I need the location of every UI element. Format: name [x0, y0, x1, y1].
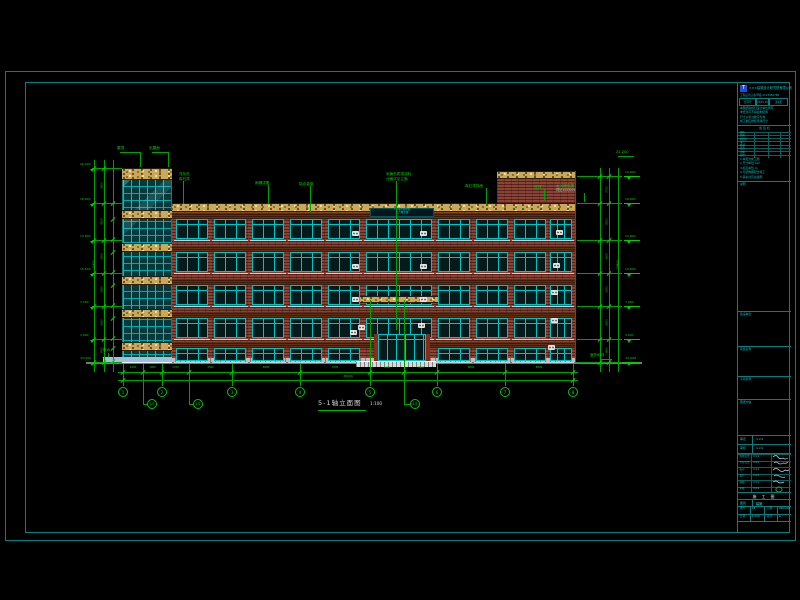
window	[514, 348, 546, 361]
window	[550, 285, 572, 305]
right-dim-value: 3900	[607, 340, 610, 360]
bottom-dim-value: 3300	[411, 367, 431, 370]
overall-dim-value: 45000	[336, 375, 360, 378]
axis-bubble: 1/2	[147, 399, 157, 409]
right-level-flag-line	[624, 339, 640, 340]
signature-role: 校对	[740, 469, 745, 472]
sheet-cell-value: 1:100	[752, 516, 759, 519]
right-level-marker	[627, 177, 631, 180]
window	[290, 252, 322, 272]
window-sill	[364, 273, 434, 274]
stair-tower-curtain-wall	[122, 168, 172, 362]
window-sill	[288, 240, 324, 241]
drawing-scale: 1:100	[370, 402, 382, 407]
window-sill	[436, 306, 472, 307]
window-sill	[548, 306, 574, 307]
bottom-dim-value: 6800	[529, 367, 549, 370]
stair-tower-spandrel-band	[122, 210, 172, 219]
window	[550, 252, 572, 272]
window	[328, 318, 360, 338]
window	[176, 285, 208, 305]
bottom-dim-value: 6800	[461, 367, 481, 370]
window-sill	[364, 240, 434, 241]
approve-value: ×××	[756, 447, 764, 450]
left-dim-value: 3300	[102, 312, 105, 332]
window-sill	[288, 306, 324, 307]
offset-axis-leader	[189, 386, 190, 404]
right-dim-value: 3300	[607, 279, 610, 299]
window	[176, 252, 208, 272]
stair-tower-top-band	[122, 168, 172, 180]
bottom-extension-line	[300, 364, 301, 386]
right-level-value: ±0.000	[625, 357, 636, 360]
facade-annotation: 米黄色质感涂料	[386, 172, 411, 176]
left-dim-chain	[113, 160, 114, 372]
window-sill	[512, 339, 548, 340]
left-level-value: 20.400	[80, 163, 91, 166]
window	[438, 219, 470, 239]
window-sill	[436, 339, 472, 340]
window-sill	[474, 339, 510, 340]
window	[214, 252, 246, 272]
signature-name: ×××	[753, 482, 759, 485]
drawing-title-underline	[318, 410, 366, 411]
right-level-flag-line	[624, 273, 640, 274]
window	[290, 285, 322, 305]
approve-divider	[752, 435, 753, 444]
axis-bubble: 1	[118, 387, 128, 397]
window-sill	[548, 362, 574, 363]
signature-role: 制图	[740, 482, 745, 485]
right-level-value: 19.600	[625, 171, 636, 174]
annotation-leader	[310, 186, 311, 212]
building-sign-band: ××市实验学校综合教学楼	[370, 208, 434, 217]
right-dim-value: 3300	[607, 312, 610, 332]
right-level-value: 18.000	[625, 198, 636, 201]
bottom-dim-value: 4300	[201, 367, 221, 370]
annotation-leader	[396, 181, 397, 330]
offset-axis-leader	[143, 386, 144, 404]
axis-bubble: 2	[157, 387, 167, 397]
window	[328, 252, 360, 272]
window	[438, 285, 470, 305]
section-label: 说明	[740, 183, 746, 186]
window	[476, 252, 508, 272]
annotation-leader	[140, 152, 141, 167]
window	[252, 219, 284, 239]
section-label: 图纸内容	[740, 401, 751, 404]
window	[214, 348, 246, 361]
window-sill	[512, 273, 548, 274]
approve-divider	[752, 444, 753, 453]
bottom-extension-line	[370, 300, 371, 386]
axis-bubble: 4	[295, 387, 305, 397]
window-sill	[548, 273, 574, 274]
window	[290, 348, 322, 361]
section-label: 子项名称	[740, 378, 751, 381]
facade-annotation: 室外地坪	[590, 353, 604, 357]
window-sill	[548, 240, 574, 241]
facade-annotation: 压顶	[534, 185, 541, 189]
signature-role: 专业负责	[740, 462, 750, 465]
facade-annotation: 真石漆饰面	[465, 184, 483, 188]
entrance-column	[426, 334, 430, 361]
sheet-cell-label: 日期	[767, 508, 772, 511]
window	[176, 219, 208, 239]
right-level-value: 13.800	[625, 235, 636, 238]
left-level-value: 10.500	[80, 268, 91, 271]
window-sill	[326, 240, 362, 241]
approve-label: 审定	[740, 438, 746, 441]
signature-name: ×××	[753, 488, 759, 491]
window	[366, 252, 432, 272]
window-sill	[474, 306, 510, 307]
window-sill	[174, 362, 210, 363]
window-sill	[174, 273, 210, 274]
annotation-leader	[152, 152, 168, 153]
window-sill	[212, 306, 248, 307]
signature-name: ×××	[753, 456, 759, 459]
ac-unit	[420, 297, 427, 302]
window-sill	[326, 339, 362, 340]
window-sill	[474, 362, 510, 363]
axis-bubble: 6	[432, 387, 442, 397]
project-row-label: 图别	[740, 502, 746, 506]
window-sill	[250, 273, 286, 274]
entrance-transom	[378, 339, 426, 340]
window	[214, 285, 246, 305]
window	[252, 348, 284, 361]
right-level-flag-line	[624, 176, 640, 177]
annotation-leader	[584, 193, 585, 202]
left-dim-value: 3300	[102, 279, 105, 299]
right-overall-dim: 20400	[616, 254, 619, 276]
window-sill	[326, 306, 362, 307]
window	[514, 285, 546, 305]
signature-col-line	[751, 454, 752, 493]
window-sill	[474, 273, 510, 274]
left-level-value: ±0.000	[80, 357, 91, 360]
right-level-flag-line	[624, 306, 640, 307]
window	[476, 285, 508, 305]
left-extension-line	[92, 203, 122, 204]
bottom-extension-line	[404, 300, 405, 386]
signature-name: ×××	[753, 475, 759, 478]
approve-row-line	[738, 444, 791, 445]
offset-axis-leader	[404, 386, 405, 404]
bottom-extension-line	[437, 364, 438, 386]
annotation-leader	[120, 152, 140, 153]
ac-unit	[350, 330, 357, 335]
left-dim-value: 3300	[102, 246, 105, 266]
annotation-leader	[168, 152, 169, 167]
window-sill	[436, 362, 472, 363]
signature-role: 复核	[740, 488, 745, 491]
annotation-leader	[618, 156, 634, 157]
ac-unit	[420, 231, 427, 236]
window-sill	[512, 240, 548, 241]
window-sill	[436, 240, 472, 241]
bottom-extension-line	[505, 364, 506, 386]
approve-row-line	[738, 435, 791, 436]
sheet-cell-divider	[750, 506, 751, 514]
ac-unit	[553, 263, 560, 268]
axis-bubble: 8	[568, 387, 578, 397]
window-sill	[548, 339, 574, 340]
sign-text-line: 综合教学楼	[371, 212, 433, 215]
axis-bubble: 3	[227, 387, 237, 397]
sheet-cell-label: 图号	[740, 508, 745, 511]
sheet-cell-label: 版次	[767, 516, 772, 519]
window-sill	[288, 339, 324, 340]
window	[176, 348, 208, 361]
window	[438, 318, 470, 338]
right-dim-value: 4200	[607, 211, 610, 231]
window	[176, 318, 208, 338]
window	[550, 219, 572, 239]
right-level-flag-line	[624, 203, 640, 204]
annotation-leader	[183, 181, 184, 204]
window-sill	[288, 362, 324, 363]
right-level-marker	[627, 363, 631, 366]
window-sill	[212, 362, 248, 363]
window-sill	[474, 240, 510, 241]
sheet-cell-label: 比例	[740, 516, 745, 519]
ac-unit	[556, 230, 563, 235]
window-sill	[250, 240, 286, 241]
signature-name: ×××	[753, 462, 759, 465]
left-overall-dim: 20400	[92, 254, 95, 276]
ac-unit	[551, 290, 558, 295]
bottom-dim-value: 2700	[166, 367, 186, 370]
axis-bubble: 7	[500, 387, 510, 397]
ac-unit	[352, 231, 359, 236]
left-level-value: 7.200	[80, 301, 89, 304]
left-level-value: 3.900	[80, 334, 89, 337]
sheet-cell-value: 2023.06	[779, 508, 790, 511]
window-sill	[512, 362, 548, 363]
window-sill	[174, 240, 210, 241]
signature-scribbles	[771, 453, 791, 492]
right-level-marker	[627, 241, 631, 244]
drawing-title: 5-1轴立面图	[318, 400, 362, 407]
window-sill	[250, 339, 286, 340]
facade-annotation: 屋顶	[117, 146, 124, 150]
window	[252, 285, 284, 305]
left-level-value: 13.800	[80, 235, 91, 238]
bottom-extension-line	[189, 364, 190, 386]
annotation-leader	[268, 185, 269, 204]
right-level-value: 3.900	[625, 334, 634, 337]
window-sill	[364, 306, 434, 307]
left-extension-line	[92, 273, 122, 274]
left-dim-value: 4200	[102, 211, 105, 231]
window	[290, 219, 322, 239]
axis-bubble: 5	[365, 387, 375, 397]
bottom-extension-line	[573, 364, 574, 386]
axis-bubble: 4/5	[410, 399, 420, 409]
facade-annotation: 真石漆	[179, 177, 190, 181]
stair-tower-spandrel-band	[122, 243, 172, 252]
window-sill	[326, 273, 362, 274]
facade-annotation-ref: 详见12ZJ001	[556, 189, 576, 193]
window-sill	[212, 240, 248, 241]
window	[252, 252, 284, 272]
window	[328, 348, 360, 361]
bottom-dim-value: 1900	[143, 367, 163, 370]
facade-annotation: 铝合金窗	[299, 182, 313, 186]
window	[514, 219, 546, 239]
window-sill	[512, 306, 548, 307]
annotation-leader	[108, 353, 109, 357]
window	[438, 252, 470, 272]
window	[476, 318, 508, 338]
left-extension-line	[92, 339, 122, 340]
bottom-extension-line	[232, 364, 233, 386]
facade-annotation: 出屋面	[149, 146, 160, 150]
ac-unit	[358, 325, 365, 330]
bottom-dim-value: 3400	[377, 367, 397, 370]
facade-annotation: 22.200	[616, 150, 629, 154]
title-block-bottom-border	[738, 521, 791, 522]
ac-unit	[352, 264, 359, 269]
elevation-drawing: ××市实验学校综合教学楼20.40019.60018.00018.00013.8…	[0, 0, 800, 600]
project-row: 图别 建施	[738, 499, 791, 506]
bottom-dim-value: 7000	[325, 367, 345, 370]
window	[214, 219, 246, 239]
stair-tower-spandrel-band	[122, 309, 172, 318]
facade-right-edge	[575, 171, 576, 362]
right-level-flag-line	[624, 240, 640, 241]
left-extension-line	[92, 168, 122, 169]
annotation-leader	[544, 189, 545, 200]
left-extension-line	[92, 306, 122, 307]
bottom-dim-value: 2000	[123, 367, 143, 370]
sheet-cell-divider	[777, 506, 778, 514]
window-sill	[288, 273, 324, 274]
right-level-marker	[627, 307, 631, 310]
window	[290, 318, 322, 338]
window	[214, 318, 246, 338]
left-level-value: 18.000	[80, 198, 91, 201]
right-level-marker	[627, 340, 631, 343]
window-sill	[174, 306, 210, 307]
bottom-dim-line-2	[118, 380, 578, 381]
facade-annotation: 浅灰色	[179, 172, 190, 176]
window	[514, 252, 546, 272]
left-extension-line	[92, 240, 122, 241]
right-dim-value: 2700	[607, 179, 610, 199]
right-dim-value: 3300	[607, 246, 610, 266]
window	[476, 348, 508, 361]
window-sill	[212, 273, 248, 274]
signature-role: 设计	[740, 475, 745, 478]
ac-unit	[548, 345, 555, 350]
entrance-column	[374, 334, 378, 361]
section-label: 项目名称	[740, 348, 751, 351]
window-sill	[174, 339, 210, 340]
right-level-flag-line	[624, 362, 640, 363]
ac-unit	[551, 318, 558, 323]
right-level-marker	[627, 274, 631, 277]
window	[328, 219, 360, 239]
window-sill	[250, 306, 286, 307]
window	[514, 318, 546, 338]
bottom-dim-value: 6800	[256, 367, 276, 370]
signature-role: 项目负责	[740, 456, 750, 459]
right-level-marker	[627, 204, 631, 207]
ac-unit	[418, 323, 425, 328]
annotation-leader	[600, 359, 612, 360]
cad-canvas: ××市实验学校综合教学楼20.40019.60018.00018.00013.8…	[0, 0, 800, 600]
annotation-leader	[486, 188, 487, 204]
sheet-cell-value: 15	[752, 508, 755, 511]
window-sill	[436, 273, 472, 274]
sheet-cell-value: A	[779, 516, 781, 519]
window	[438, 348, 470, 361]
window	[328, 285, 360, 305]
window-sill	[212, 339, 248, 340]
left-dim-value: 3600	[102, 175, 105, 195]
window-sill	[250, 362, 286, 363]
approve-label: 审核	[740, 447, 746, 450]
right-level-value: 10.500	[625, 268, 636, 271]
axis-bubble: 2/2	[193, 399, 203, 409]
stair-tower-spandrel-band	[122, 342, 172, 351]
signature-name: ×××	[753, 469, 759, 472]
right-roof-block-coping	[497, 171, 575, 179]
ac-unit	[352, 297, 359, 302]
approve-value: ×××	[756, 438, 764, 441]
section-label: 建设单位	[740, 313, 751, 316]
window	[366, 219, 432, 239]
right-level-value: 7.200	[625, 301, 634, 304]
stage-row: 施 工 图	[738, 492, 791, 499]
window	[252, 318, 284, 338]
window	[476, 219, 508, 239]
title-block: T ×××建筑设计研究院有限公司 工程设计证书 甲级 A123456789 合同…	[737, 82, 790, 533]
stair-tower-spandrel-band	[122, 276, 172, 285]
sheet-mid-divider	[764, 506, 765, 514]
left-extension-line	[92, 362, 122, 363]
ac-unit	[420, 264, 427, 269]
facade-annotation: 散水	[103, 348, 110, 352]
